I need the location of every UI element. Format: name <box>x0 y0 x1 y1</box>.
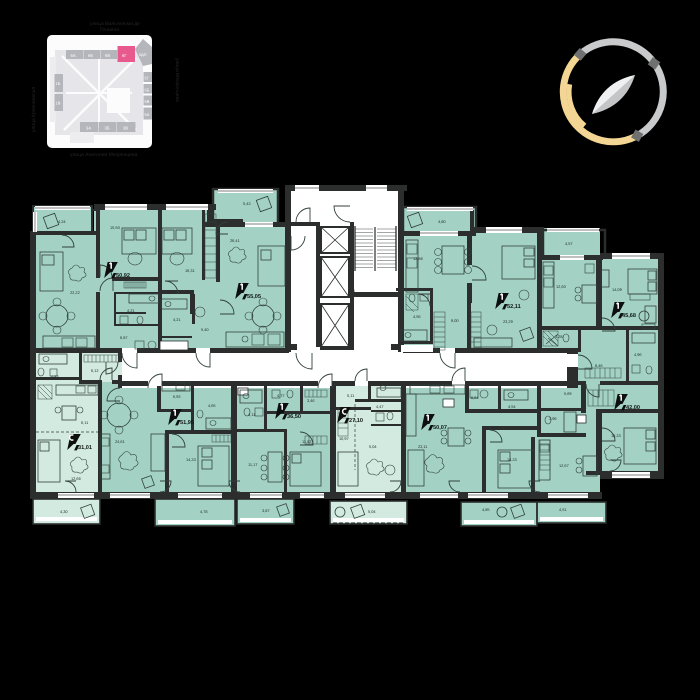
svg-text:3Б: 3Б <box>105 126 110 131</box>
svg-text:5Б: 5Б <box>145 88 150 93</box>
svg-text:4,96: 4,96 <box>634 352 642 357</box>
svg-text:4,85: 4,85 <box>482 507 490 512</box>
svg-text:5,40: 5,40 <box>201 327 209 332</box>
svg-text:3,87: 3,87 <box>262 508 270 513</box>
svg-text:5В: 5В <box>145 99 150 104</box>
svg-text:4,56: 4,56 <box>413 314 421 319</box>
svg-text:5,43: 5,43 <box>243 201 251 206</box>
svg-text:42,00: 42,00 <box>626 405 640 411</box>
svg-text:12,86: 12,86 <box>413 256 423 261</box>
svg-text:4,57: 4,57 <box>565 241 573 246</box>
svg-text:улица Анатолия Мехренцева: улица Анатолия Мехренцева <box>70 152 138 158</box>
svg-text:5,04: 5,04 <box>368 509 376 514</box>
svg-text:23,29: 23,29 <box>503 319 513 324</box>
svg-text:3В: 3В <box>123 126 128 131</box>
svg-text:6,93: 6,93 <box>173 394 181 399</box>
svg-text:12,66: 12,66 <box>71 476 81 481</box>
svg-text:3,96: 3,96 <box>549 416 557 421</box>
svg-text:5А: 5А <box>145 112 150 117</box>
svg-text:15,50: 15,50 <box>110 225 121 230</box>
svg-text:6Г: 6Г <box>122 53 127 58</box>
svg-text:27,10: 27,10 <box>349 418 363 424</box>
svg-text:6,64: 6,64 <box>471 395 479 400</box>
svg-text:4,83: 4,83 <box>51 374 59 379</box>
svg-text:5,69: 5,69 <box>564 391 572 396</box>
svg-text:3А: 3А <box>86 126 91 131</box>
svg-text:4,47: 4,47 <box>376 404 384 409</box>
svg-text:23,11: 23,11 <box>418 444 427 449</box>
svg-text:18,33: 18,33 <box>611 433 621 438</box>
svg-text:26,41: 26,41 <box>230 238 240 243</box>
svg-text:36,50: 36,50 <box>287 414 301 420</box>
svg-text:6,11: 6,11 <box>81 420 88 425</box>
svg-text:9,00: 9,00 <box>451 318 459 323</box>
svg-text:16,31: 16,31 <box>185 268 195 273</box>
svg-text:4,78: 4,78 <box>200 509 208 514</box>
svg-text:6,12: 6,12 <box>91 368 99 373</box>
svg-text:3,28: 3,28 <box>555 334 563 339</box>
svg-text:5Д/Е: 5Д/Е <box>139 53 147 57</box>
svg-text:улица Краснолесья: улица Краснолесья <box>31 87 37 132</box>
svg-text:4,11: 4,11 <box>248 412 255 417</box>
svg-text:4,54: 4,54 <box>508 404 516 409</box>
svg-text:6А: 6А <box>71 53 76 58</box>
svg-text:12,67: 12,67 <box>559 463 569 468</box>
svg-text:4,30: 4,30 <box>60 509 68 514</box>
svg-text:4,24: 4,24 <box>58 219 66 224</box>
svg-text:6В: 6В <box>105 53 110 58</box>
svg-text:12,60: 12,60 <box>556 284 567 289</box>
svg-text:11,17: 11,17 <box>248 462 257 467</box>
svg-text:45,68: 45,68 <box>622 313 636 319</box>
svg-text:51,95: 51,95 <box>180 420 194 426</box>
svg-text:14,09: 14,09 <box>612 287 622 292</box>
svg-text:31,01: 31,01 <box>78 445 92 451</box>
svg-text:5,04: 5,04 <box>369 444 377 449</box>
svg-text:3,46: 3,46 <box>307 398 315 403</box>
svg-text:4,80: 4,80 <box>438 219 446 224</box>
svg-text:6Б: 6Б <box>88 53 93 58</box>
svg-text:улица Мехренцева: улица Мехренцева <box>174 58 180 102</box>
svg-text:22,22: 22,22 <box>70 290 80 295</box>
svg-text:14,33: 14,33 <box>186 457 196 462</box>
svg-text:8,46: 8,46 <box>595 363 603 368</box>
svg-text:4,65: 4,65 <box>208 403 216 408</box>
svg-text:50,92: 50,92 <box>116 273 130 279</box>
svg-text:4,77: 4,77 <box>277 393 285 398</box>
svg-text:11,83: 11,83 <box>302 439 311 444</box>
svg-text:Геннина: Геннина <box>100 27 119 33</box>
svg-text:55,05: 55,05 <box>247 294 261 300</box>
svg-text:1В: 1В <box>56 101 61 106</box>
svg-text:1Б: 1Б <box>56 81 61 86</box>
svg-text:24,61: 24,61 <box>115 439 125 444</box>
svg-text:14,33: 14,33 <box>507 457 517 462</box>
svg-text:6,87: 6,87 <box>120 335 128 340</box>
svg-text:4,51: 4,51 <box>559 507 567 512</box>
svg-text:10,97: 10,97 <box>339 436 349 441</box>
svg-text:5,11: 5,11 <box>347 393 354 398</box>
svg-text:4,21: 4,21 <box>173 317 181 322</box>
svg-text:52,11: 52,11 <box>507 304 521 310</box>
svg-text:50,07: 50,07 <box>433 425 447 431</box>
svg-text:4,21: 4,21 <box>127 308 135 313</box>
